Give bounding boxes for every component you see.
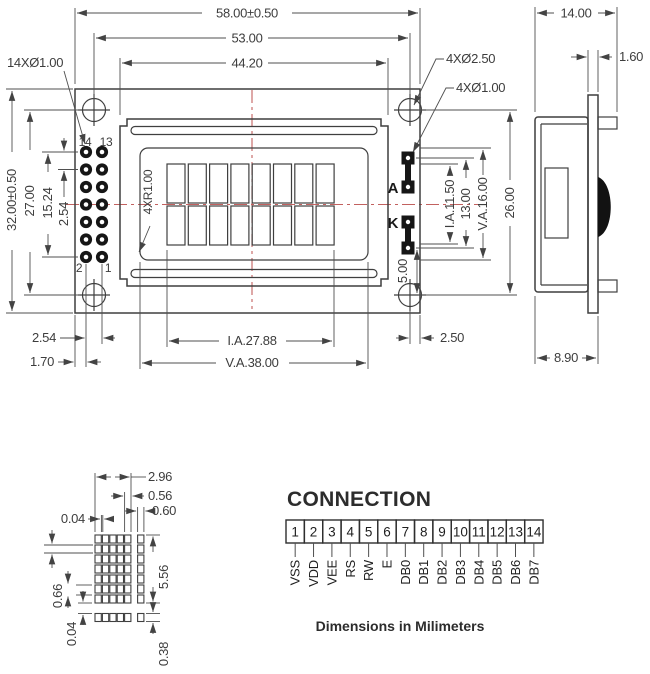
dot	[102, 575, 108, 583]
dim-col-pitch: 0.60	[152, 503, 176, 518]
dot	[102, 565, 108, 573]
lcd-module-technical-drawing: 4XR1.00 14 13 2 1 A K	[0, 0, 650, 674]
character-cell	[252, 206, 270, 245]
dim-col-pitch: 2.54	[32, 330, 56, 345]
pin-number-13: 13	[100, 135, 113, 149]
pin-hole-center	[84, 220, 89, 225]
connection-pin-label: DB2	[435, 560, 450, 585]
dot	[110, 565, 116, 573]
connection-pin-number: 8	[420, 525, 428, 540]
connection-pin-number: 7	[402, 525, 410, 540]
connection-pin-number: 5	[365, 525, 373, 540]
dot	[95, 555, 101, 563]
dot	[117, 535, 123, 543]
connection-pin-number: 11	[472, 525, 486, 540]
pin-hole-center	[100, 185, 105, 190]
dot	[117, 595, 123, 603]
dot	[125, 555, 131, 563]
dim-hole-span-h: 53.00	[231, 31, 262, 46]
dim-hole-span-right: 26.00	[502, 187, 517, 218]
backlight-pins	[402, 152, 415, 255]
connection-pin-number: 2	[310, 525, 318, 540]
dot	[102, 585, 108, 593]
pin-hole-center	[100, 150, 105, 155]
dim-pcb-thickness: 1.60	[619, 49, 643, 64]
dot-cursor-row	[102, 614, 108, 622]
dot	[125, 585, 131, 593]
dim-backlight-pin-span: 13.00	[458, 188, 473, 219]
dot	[110, 585, 116, 593]
dot	[102, 555, 108, 563]
connection-pin-label: VEE	[324, 559, 339, 585]
label-pin-holes: 14XØ1.00	[7, 55, 63, 70]
character-cell	[295, 206, 313, 245]
connection-pin-label: RW	[361, 559, 376, 581]
character-cell	[231, 164, 249, 203]
connection-pin-label: VDD	[306, 560, 321, 587]
bezel-slot-bottom	[131, 270, 377, 278]
dim-dot-width: 0.56	[148, 488, 172, 503]
corner-radius-leader	[139, 226, 150, 252]
dim-pin-span: 15.24	[40, 187, 55, 218]
character-detail-view: 2.96 0.56 0.60 0.04 0.66 0.04 5.56 0.38	[44, 469, 176, 666]
connection-pin-number: 13	[508, 525, 523, 540]
character-cell	[231, 206, 249, 245]
dim-view-area-height: V.A.16.00	[475, 177, 490, 230]
dot	[125, 575, 131, 583]
character-cell	[188, 206, 206, 245]
bezel-slot-top	[131, 127, 377, 135]
dim-overall-width: 58.00±0.50	[216, 6, 278, 21]
dot	[110, 545, 116, 553]
dot	[138, 595, 144, 603]
side-backlight-bump	[598, 177, 611, 237]
side-pcb	[588, 95, 598, 313]
dot	[125, 545, 131, 553]
dot	[110, 595, 116, 603]
dot	[95, 565, 101, 573]
dim-overall-height: 32.00±0.50	[4, 169, 19, 231]
side-glass	[545, 168, 568, 238]
dot-cursor-row	[138, 614, 144, 622]
dot	[117, 545, 123, 553]
side-frame	[535, 117, 588, 292]
connection-pin-label: VSS	[288, 559, 303, 585]
dot-cursor-row	[95, 614, 101, 622]
connection-table: 1VSS2VDD3VEE4RS5RW6E7DB08DB19DB210DB311D…	[286, 520, 543, 587]
dot	[117, 575, 123, 583]
connection-section: CONNECTION 1VSS2VDD3VEE4RS5RW6E7DB08DB19…	[286, 488, 543, 634]
backlight-holes-leader	[413, 88, 454, 152]
dot	[138, 565, 144, 573]
dot	[138, 575, 144, 583]
dim-inner-area-height: I.A.11.50	[442, 180, 457, 228]
pin-hole-center	[84, 202, 89, 207]
dot-cursor-row	[125, 614, 131, 622]
dim-view-area-width: V.A.38.00	[225, 355, 278, 370]
dim-row-gap: 0.04	[64, 622, 79, 646]
connection-pin-label: DB1	[416, 560, 431, 585]
dot	[95, 595, 101, 603]
pin-number-1: 1	[105, 261, 112, 275]
label-backlight-holes: 4XØ1.00	[456, 80, 505, 95]
side-view: 14.00 1.60 8.90	[535, 6, 643, 366]
connection-pin-label: DB5	[490, 560, 505, 585]
connection-pin-label: E	[379, 559, 394, 568]
connection-title: CONNECTION	[287, 488, 431, 511]
dot	[138, 555, 144, 563]
character-cell	[167, 206, 185, 245]
dot	[102, 535, 108, 543]
character-cell	[252, 164, 270, 203]
pin-hole-center	[100, 237, 105, 242]
connection-pin-number: 3	[328, 525, 336, 540]
dim-char-height: 5.56	[156, 565, 171, 589]
dim-pin-offset: 5.00	[395, 259, 410, 283]
connection-pin-label: DB6	[508, 560, 523, 585]
dim-char-width: 2.96	[148, 469, 172, 484]
dot	[95, 545, 101, 553]
connection-pin-number: 14	[526, 525, 542, 540]
dot	[117, 565, 123, 573]
connection-pin-label: DB7	[526, 560, 541, 585]
dim-dot-height: 0.66	[50, 584, 65, 608]
bottom-extension-lines	[75, 250, 420, 369]
dot	[138, 535, 144, 543]
dim-inner-area-width: I.A.27.88	[227, 333, 276, 348]
dim-edge-offset: 1.70	[30, 354, 54, 369]
mount-holes-leader	[414, 59, 444, 105]
connection-pin-label: RS	[343, 559, 358, 577]
dim-col-gap: 0.04	[61, 511, 85, 526]
pin-hole-center	[84, 237, 89, 242]
label-mount-holes: 4XØ2.50	[446, 51, 495, 66]
connection-pin-number: 10	[453, 525, 468, 540]
side-tab-bottom	[598, 280, 617, 292]
dot	[110, 535, 116, 543]
character-cell	[188, 164, 206, 203]
cathode-label: K	[388, 215, 399, 232]
character-cell	[316, 206, 334, 245]
connection-pin-number: 9	[438, 525, 446, 540]
character-cell	[295, 164, 313, 203]
dot	[125, 535, 131, 543]
pin-hole-center	[84, 185, 89, 190]
dot-cursor-row	[117, 614, 123, 622]
dot	[95, 585, 101, 593]
connection-pin-number: 1	[291, 525, 299, 540]
connection-pin-number: 12	[490, 525, 505, 540]
dot	[102, 595, 108, 603]
dot	[117, 585, 123, 593]
corner-radius-label: 4XR1.00	[141, 169, 155, 214]
pin-hole-center	[100, 167, 105, 172]
pin-hole-center	[100, 255, 105, 260]
dot	[125, 595, 131, 603]
dim-side-width: 14.00	[560, 6, 591, 21]
dot	[125, 565, 131, 573]
dot	[95, 575, 101, 583]
dot	[138, 585, 144, 593]
side-frame-inner-lines	[541, 124, 587, 285]
dot	[95, 535, 101, 543]
dot-cursor-row	[110, 614, 116, 622]
drawing-canvas: 4XR1.00 14 13 2 1 A K	[0, 0, 650, 674]
pin-hole-center	[100, 202, 105, 207]
character-cell	[316, 164, 334, 203]
dim-depth: 8.90	[554, 350, 578, 365]
dot	[138, 545, 144, 553]
dot-matrix-grid	[95, 535, 144, 622]
connection-pin-label: DB4	[471, 560, 486, 585]
dim-bezel-width: 44.20	[231, 56, 262, 71]
dimensions-note: Dimensions in Milimeters	[316, 618, 485, 634]
character-cell	[167, 164, 185, 203]
connection-pin-number: 6	[383, 525, 391, 540]
pin-hole-center	[84, 167, 89, 172]
pin-hole-center	[84, 255, 89, 260]
connection-pin-label: DB0	[398, 560, 413, 585]
dim-pin-pitch: 2.54	[56, 202, 71, 226]
pin-number-14: 14	[79, 135, 92, 149]
dot	[110, 555, 116, 563]
character-cell	[274, 206, 292, 245]
dot	[102, 545, 108, 553]
connection-pin-number: 4	[347, 525, 355, 540]
dot	[110, 575, 116, 583]
anode-label: A	[388, 180, 399, 197]
character-cell	[210, 164, 228, 203]
character-cell	[274, 164, 292, 203]
connection-pin-label: DB3	[453, 560, 468, 585]
dot	[117, 555, 123, 563]
dim-hole-span-v: 27.00	[22, 185, 37, 216]
dim-hole-edge: 2.50	[440, 330, 464, 345]
front-view: 4XR1.00 14 13 2 1 A K	[4, 6, 517, 371]
character-cell	[210, 206, 228, 245]
dim-row-offset: 0.38	[156, 642, 171, 666]
pin-number-2: 2	[76, 261, 83, 275]
pin-hole-center	[84, 150, 89, 155]
side-tab-top	[598, 117, 617, 129]
pin-hole-center	[100, 220, 105, 225]
